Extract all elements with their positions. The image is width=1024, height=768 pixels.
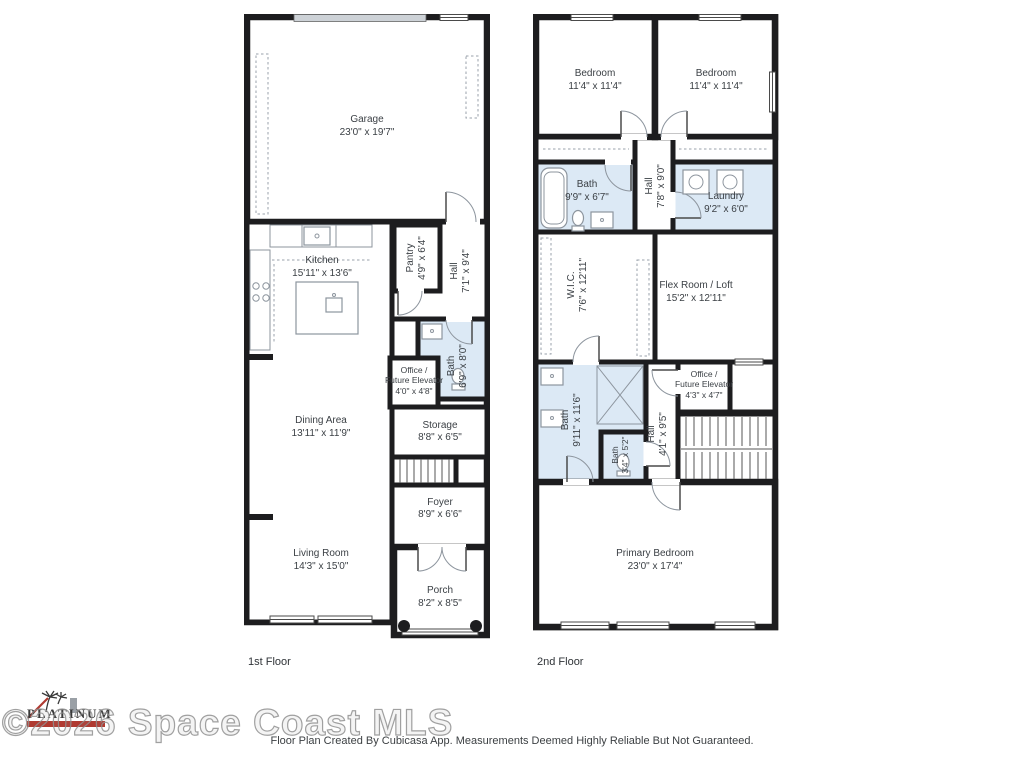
storage-dims: 8'8" x 6'5" [418, 432, 462, 443]
room-closet-2f [730, 362, 775, 412]
hall1-label: Hall [449, 262, 460, 279]
bedroom-left-dims: 11'4" x 11'4" [568, 81, 622, 92]
kitchen-island-icon [296, 282, 358, 334]
bathtub-icon [541, 168, 567, 228]
window [770, 72, 776, 112]
dining-label: Dining Area [295, 415, 347, 426]
floor2-caption: 2nd Floor [537, 656, 583, 668]
floor2-plan: Bedroom 11'4" x 11'4" Bedroom 11'4" x 11… [533, 14, 779, 642]
hall-upper-dims: 7'8" x 9'0" [656, 164, 667, 208]
garage-label: Garage [350, 114, 384, 125]
bath-primary-dims: 9'11" x 11'6" [572, 393, 583, 447]
window [571, 15, 613, 21]
foyer-label: Foyer [427, 497, 453, 508]
office1-label-1: Office / [401, 365, 428, 375]
wic-label: W.I.C. [566, 271, 577, 298]
window [440, 15, 468, 21]
floor-plan-page: Garage 23'0" x 19'7" Kitchen 15'11" x 13… [0, 0, 1024, 768]
garage-dims: 23'0" x 19'7" [340, 127, 395, 138]
porch-dims: 8'2" x 8'5" [418, 598, 462, 609]
window [699, 15, 741, 21]
wall-stub-dining-living [247, 514, 273, 520]
disclaimer-text: Floor Plan Created By Cubicasa App. Meas… [0, 735, 1024, 747]
office2-dims: 4'3" x 4'7" [685, 390, 722, 400]
bedroom-right-dims: 11'4" x 11'4" [689, 81, 743, 92]
room-wic [536, 232, 655, 362]
room-stairs-1f [392, 457, 456, 485]
porch-column [470, 620, 482, 632]
office2-label-2: Future Elevator [675, 379, 733, 389]
window [270, 616, 314, 623]
pantry-label: Pantry [405, 244, 416, 273]
bath-upper-toilet-icon [572, 211, 584, 232]
primary-dims: 23'0" x 17'4" [628, 561, 683, 572]
hall1-dims: 7'1" x 9'4" [461, 249, 472, 293]
porch-column [398, 620, 410, 632]
living-label: Living Room [293, 548, 349, 559]
primary-label: Primary Bedroom [616, 548, 694, 559]
wic-dims: 7'6" x 12'11" [578, 258, 589, 313]
floor2-walls [536, 17, 775, 627]
floor1-caption: 1st Floor [248, 656, 291, 668]
storage-label: Storage [422, 420, 457, 431]
bath-upper-dims: 9'9" x 6'7" [565, 192, 609, 203]
floor1-plan: Garage 23'0" x 19'7" Kitchen 15'11" x 13… [244, 14, 490, 642]
bath-upper-sink-icon [591, 212, 613, 228]
bedroom-right-label: Bedroom [696, 68, 737, 79]
hall-mid-label: Hall [646, 425, 657, 442]
floor1-walls [247, 17, 487, 635]
bedroom-left-label: Bedroom [575, 68, 616, 79]
flex-label: Flex Room / Loft [659, 280, 733, 291]
washer-icon [683, 170, 709, 194]
bath1-dims: 6'9" x 8'0" [458, 344, 469, 388]
vanity-sink-icon [541, 368, 563, 385]
dining-dims: 13'11" x 11'9" [292, 428, 351, 439]
garage-door-icon [294, 15, 426, 22]
porch-label: Porch [427, 585, 453, 596]
laundry-dims: 9'2" x 6'0" [704, 204, 748, 215]
window [561, 622, 609, 629]
window [318, 616, 372, 623]
wall-stub-kitchen-dining [247, 354, 273, 360]
office2-label-1: Office / [691, 369, 718, 379]
hall-upper-label: Hall [644, 177, 655, 194]
porch-railing [402, 629, 478, 635]
hall-mid-dims: 4'1" x 9'5" [658, 412, 669, 456]
window [735, 359, 763, 365]
foyer-dims: 8'9" x 6'6" [418, 509, 462, 520]
bath-toilet-dims: 3'4" x 5'2" [620, 436, 630, 473]
bath-upper-label: Bath [577, 179, 598, 190]
pantry-dims: 4'9" x 6'4" [417, 236, 428, 280]
laundry-label: Laundry [708, 191, 744, 202]
living-dims: 14'3" x 15'0" [294, 561, 349, 572]
office1-label-2: Future Elevator [385, 375, 443, 385]
bath-toilet-label: Bath [610, 446, 620, 464]
window [715, 622, 755, 629]
bath1-label: Bath [446, 356, 457, 377]
kitchen-label: Kitchen [305, 255, 338, 266]
flex-dims: 15'2" x 12'11" [666, 293, 726, 304]
window [617, 622, 669, 629]
office1-dims: 4'0" x 4'8" [395, 386, 432, 396]
bath1-sink-icon [422, 324, 442, 339]
kitchen-dims: 15'11" x 13'6" [292, 268, 352, 279]
bath-primary-label: Bath [560, 410, 571, 431]
